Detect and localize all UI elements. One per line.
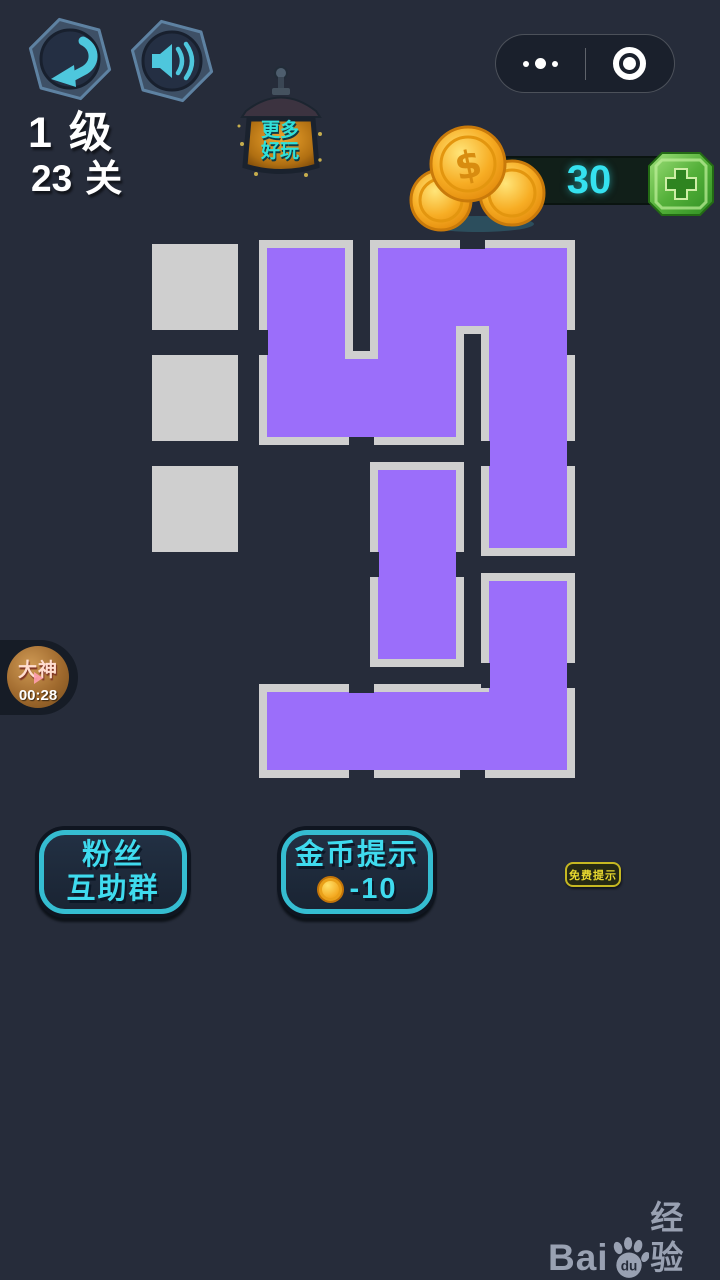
outline-notch: [567, 663, 576, 688]
hexagon-back-icon: [26, 16, 114, 102]
timer-value: 00:28: [7, 687, 69, 704]
outline-notch: [567, 441, 576, 466]
streamer-badge[interactable]: 大神 00:28: [0, 640, 78, 715]
puzzle-board[interactable]: [0, 230, 720, 790]
baidu-paw-icon: du: [610, 1234, 650, 1280]
baidu-logo-text: Bai: [548, 1238, 609, 1278]
exit-button[interactable]: [586, 35, 675, 92]
outline-notch: [460, 770, 485, 779]
more-menu-button[interactable]: [496, 35, 585, 92]
coin-hint-button[interactable]: 金币提示 -10: [281, 830, 433, 914]
target-icon: [613, 47, 646, 80]
hexagon-sound-icon: [128, 18, 216, 104]
sound-button[interactable]: [128, 18, 216, 104]
coins-icon: $: [408, 124, 548, 232]
streamer-avatar: 大神 00:28: [7, 646, 69, 708]
outline-notch: [567, 330, 576, 355]
outline-notch: [349, 770, 374, 779]
coin-icon: [317, 876, 344, 903]
add-coins-button[interactable]: [646, 150, 716, 218]
stage-value: 23: [31, 158, 72, 200]
outline-notch: [456, 552, 465, 577]
jingyan-logo-text: 经验: [650, 1198, 713, 1278]
miniprogram-capsule: [495, 34, 675, 93]
stage-unit: 关: [85, 148, 122, 202]
gray-block[interactable]: [152, 466, 238, 552]
more-dots-icon: [535, 58, 546, 69]
baidu-du-text: du: [620, 1259, 637, 1274]
outline-notch: [259, 330, 268, 355]
outline-notch: [349, 684, 374, 693]
outline-notch: [481, 663, 490, 688]
more-fun-button[interactable]: 更多 好玩: [236, 64, 324, 178]
fans-group-button[interactable]: 粉丝 互助群: [39, 830, 187, 914]
outline-notch: [481, 441, 490, 466]
outline-notch: [370, 552, 379, 577]
gray-block[interactable]: [152, 244, 238, 330]
outline-notch: [349, 437, 374, 446]
gray-block[interactable]: [152, 355, 238, 441]
hint-cost: -10: [350, 873, 398, 906]
stage-label: 23 关: [31, 148, 122, 202]
outline-notch: [460, 240, 485, 249]
more-dots-icon: [523, 61, 529, 67]
more-dots-icon: [552, 61, 558, 67]
free-hint-button[interactable]: 免费提示: [565, 862, 621, 887]
play-icon: [34, 672, 43, 684]
game-screen: 1 级 23 关 更多 好: [0, 0, 720, 1280]
coin-balance-value: 30: [567, 158, 612, 203]
back-button[interactable]: [26, 16, 114, 102]
baidu-watermark: Bai du 经验 jingyan.baidu.com: [548, 1198, 713, 1280]
more-fun-label: 更多 好玩: [250, 120, 310, 162]
piece-domino[interactable]: [374, 466, 460, 663]
